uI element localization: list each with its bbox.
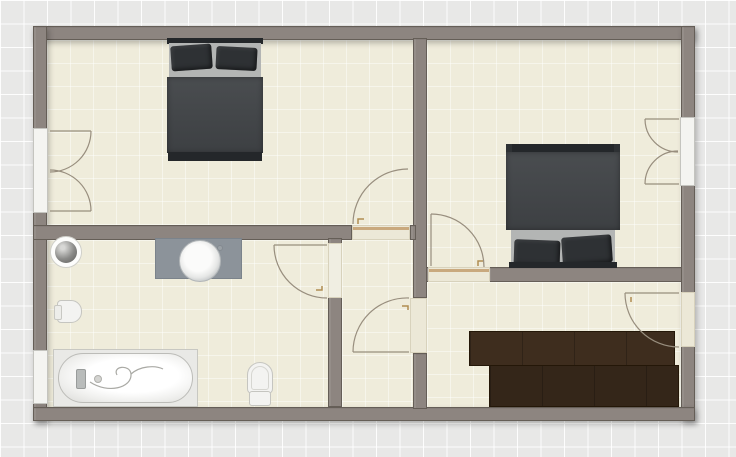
round-sink (179, 240, 221, 282)
wall-bottom[interactable] (33, 407, 695, 421)
door-opening-bathroom-to-hall[interactable] (328, 243, 342, 298)
bed-pillow (215, 46, 257, 71)
bathtub-faucet (76, 369, 86, 389)
toilet-cistern (249, 391, 271, 406)
door-opening-hall-to-dressing[interactable] (410, 298, 427, 353)
floor-plan-canvas (0, 0, 736, 457)
double-bed-left-bedroom[interactable] (167, 38, 263, 162)
wall-right[interactable] (681, 26, 695, 421)
bidet-tank (54, 305, 62, 320)
bathtub[interactable] (53, 349, 198, 407)
wall-bedroom-left-bottom-stub[interactable] (410, 225, 416, 240)
bed-footboard (511, 144, 615, 152)
floor-hall (342, 240, 413, 407)
toilet-seat (251, 366, 269, 390)
corner-round-basin[interactable] (50, 236, 82, 268)
double-bed-right-bedroom[interactable] (506, 144, 620, 268)
vanity-counter[interactable] (155, 238, 242, 279)
wall-center-lower[interactable] (413, 353, 427, 409)
bed-duvet (167, 77, 263, 153)
wardrobe-upper-section[interactable] (469, 331, 675, 366)
toilet-bowl[interactable] (247, 362, 273, 394)
basin-bowl (55, 241, 77, 263)
bed-headboard (509, 262, 617, 268)
door-leaf-closed-bedroom-right (429, 269, 489, 272)
bed-duvet (506, 152, 620, 230)
door-opening-bedroom-right-to-dressing[interactable] (428, 267, 490, 282)
wardrobe-lower-section[interactable] (489, 365, 679, 407)
bed-post (506, 144, 512, 152)
wall-center-upper[interactable] (413, 38, 427, 298)
bed-pillow (170, 44, 213, 72)
door-opening-bedroom-left-to-hall[interactable] (352, 225, 410, 240)
bed-footboard (168, 152, 262, 161)
french-door-bedroom-right[interactable] (680, 117, 695, 186)
door-leaf-closed-bedroom-left (353, 227, 409, 230)
sink-faucet (217, 245, 223, 251)
wall-bathroom-right[interactable] (328, 296, 342, 407)
bed-pillow (561, 234, 613, 265)
window-bathroom[interactable] (33, 350, 48, 404)
bidet[interactable] (57, 300, 82, 323)
entry-door-opening[interactable] (681, 292, 695, 347)
wall-bedroom-right-bottom[interactable] (488, 267, 682, 282)
bathtub-drain (94, 375, 102, 383)
bed-post (614, 144, 620, 152)
french-door-bedroom-left[interactable] (33, 128, 48, 213)
wall-top[interactable] (33, 26, 695, 40)
